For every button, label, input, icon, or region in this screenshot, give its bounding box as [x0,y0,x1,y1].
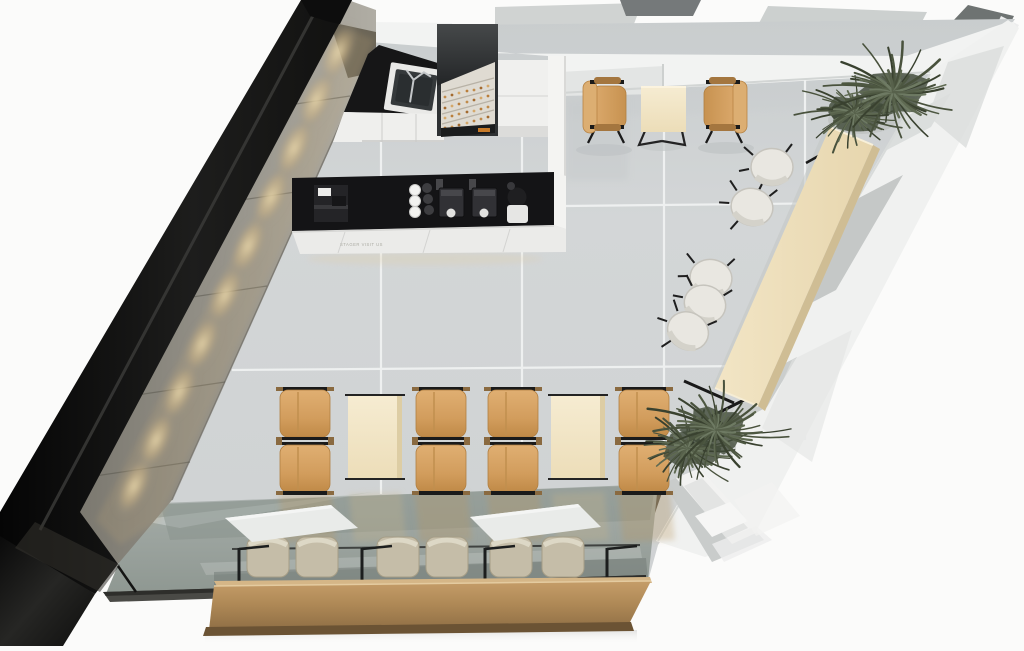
svg-text:STAGER VISIT US: STAGER VISIT US [340,242,383,247]
